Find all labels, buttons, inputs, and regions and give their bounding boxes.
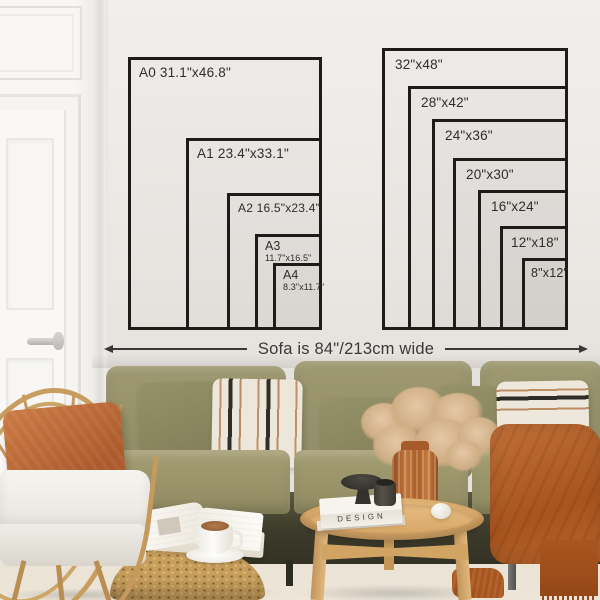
frame-a1-label: A1 23.4"x33.1"	[197, 146, 289, 161]
frame-a3-label: A3 11.7"x16.5"	[265, 240, 311, 264]
arrow-right-icon	[579, 345, 588, 353]
sofa-leg	[508, 560, 516, 590]
design-book-title: DESIGN	[337, 511, 386, 523]
frame-12x18-label: 12"x18"	[511, 235, 559, 250]
wall-panel-molding-inner	[0, 14, 74, 72]
frame-a4-name: A4	[283, 269, 324, 283]
door-handle-rosette	[53, 332, 64, 350]
frame-8x12-label: 8"x12"	[531, 266, 568, 280]
frame-24x36-label: 24"x36"	[445, 128, 493, 143]
frame-32x48-label: 32"x48"	[395, 57, 443, 72]
door-panel-upper	[6, 138, 54, 310]
sofa-leg	[286, 560, 293, 586]
frame-16x24-label: 16"x24"	[491, 199, 539, 214]
frame-8x12: 8"x12"	[522, 258, 568, 330]
coffee-surface	[201, 521, 229, 531]
frame-20x30-label: 20"x30"	[466, 167, 514, 182]
frame-a0-label: A0 31.1"x46.8"	[139, 65, 231, 80]
frame-a2-label: A2 16.5"x23.4"	[238, 201, 320, 215]
arrow-left-icon	[104, 345, 113, 353]
poster-size-guide-scene: A0 31.1"x46.8" A1 23.4"x33.1" A2 16.5"x2…	[0, 0, 600, 600]
frame-a4: A4 8.3"x11.7"	[273, 263, 322, 330]
throw-blanket-drape	[540, 540, 598, 596]
throw-fringe	[542, 592, 596, 600]
arrow-line-left	[113, 348, 247, 350]
arrow-line-right	[445, 348, 579, 350]
decor-egg	[431, 503, 451, 519]
coffee-cup-handle	[229, 530, 243, 550]
frame-a3-name: A3	[265, 240, 311, 254]
frame-28x42-label: 28"x42"	[421, 95, 469, 110]
dark-cup-opening	[376, 479, 394, 486]
open-book-photo	[157, 516, 181, 535]
frame-a4-size: 8.3"x11.7"	[283, 283, 324, 293]
frame-a4-label: A4 8.3"x11.7"	[283, 269, 324, 293]
